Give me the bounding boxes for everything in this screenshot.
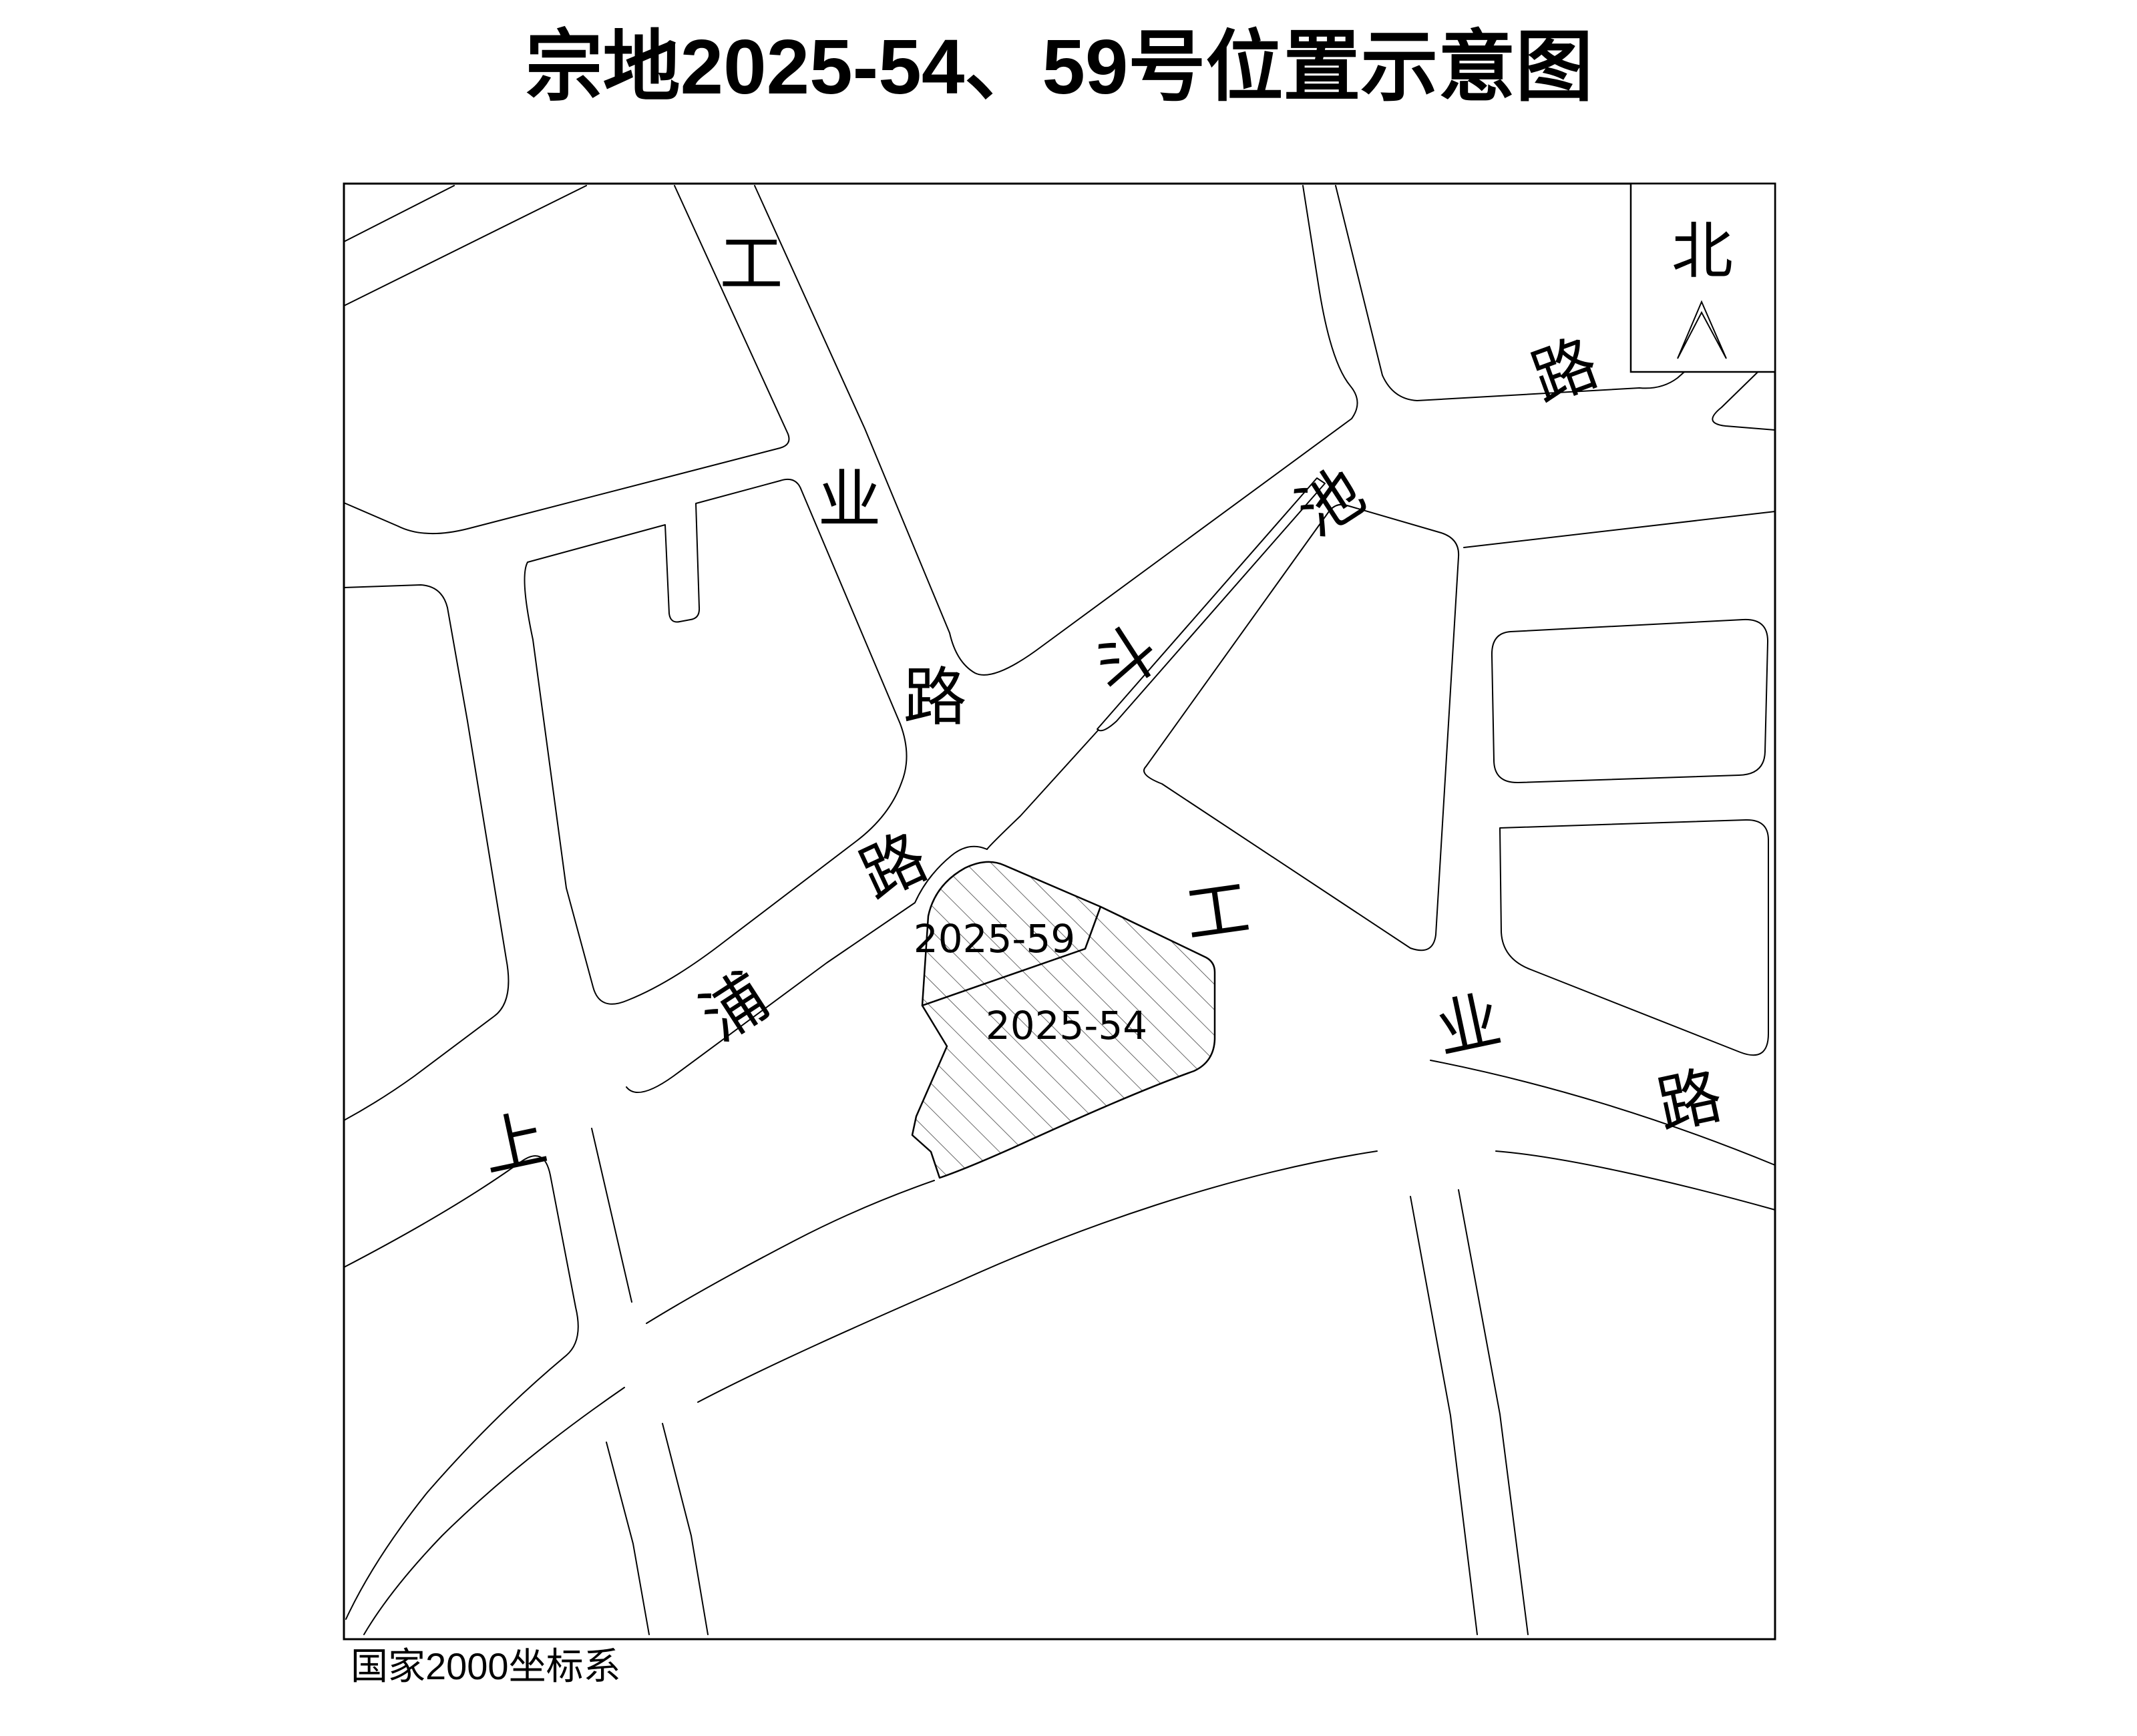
road-edge (1464, 511, 1775, 548)
road-label-douchilu-3: 路 (1523, 327, 1607, 415)
block-outline (344, 585, 508, 1120)
road-edge (606, 1442, 649, 1635)
road-edge (1496, 1151, 1775, 1210)
road-edge (364, 1387, 624, 1635)
road-label-gongyelu-e-2: 业 (1430, 984, 1507, 1066)
block-outline (525, 479, 907, 1004)
road-edge (698, 1151, 1377, 1402)
road-label-shangpulu-1: 上 (476, 1102, 553, 1184)
road-edge (987, 730, 1099, 849)
road-edge (1410, 1197, 1477, 1635)
north-arrow-box: 北 (1631, 184, 1775, 372)
north-label: 北 (1672, 218, 1733, 286)
road-label-gongyelu-n-3: 路 (903, 662, 966, 733)
road-label-shangpulu-2: 浦 (689, 961, 781, 1055)
road-edge (344, 186, 586, 306)
parcel-label-59: 2025-59 (914, 916, 1075, 961)
road-edge (344, 1156, 578, 1619)
coordinate-system-note: 国家2000坐标系 (351, 1645, 621, 1687)
road-label-douchilu-2: 池 (1285, 456, 1376, 550)
road-label-gongyelu-n-1: 工 (719, 229, 783, 300)
road-edge (592, 1128, 632, 1302)
parcels: 2025-59 2025-54 (912, 862, 1215, 1178)
road-label-gongyelu-e-3: 路 (1652, 1060, 1728, 1142)
road-edge (646, 1180, 934, 1323)
parcel-label-54: 2025-54 (986, 1003, 1147, 1048)
road-edge (344, 186, 454, 242)
map-canvas: 宗地2025-54、59号位置示意图 (0, 0, 2137, 1736)
road-label-gongyelu-n-2: 业 (817, 465, 881, 535)
page: 宗地2025-54、59号位置示意图 (0, 0, 2137, 1736)
road-edge (662, 1424, 708, 1635)
road-label-douchilu-1: 斗 (1080, 614, 1171, 708)
block-outline (1500, 820, 1768, 1055)
road-label-gongyelu-e-1: 工 (1181, 873, 1254, 951)
block-outline (755, 186, 1358, 675)
block-outline (1492, 620, 1768, 783)
page-title: 宗地2025-54、59号位置示意图 (526, 23, 1593, 110)
